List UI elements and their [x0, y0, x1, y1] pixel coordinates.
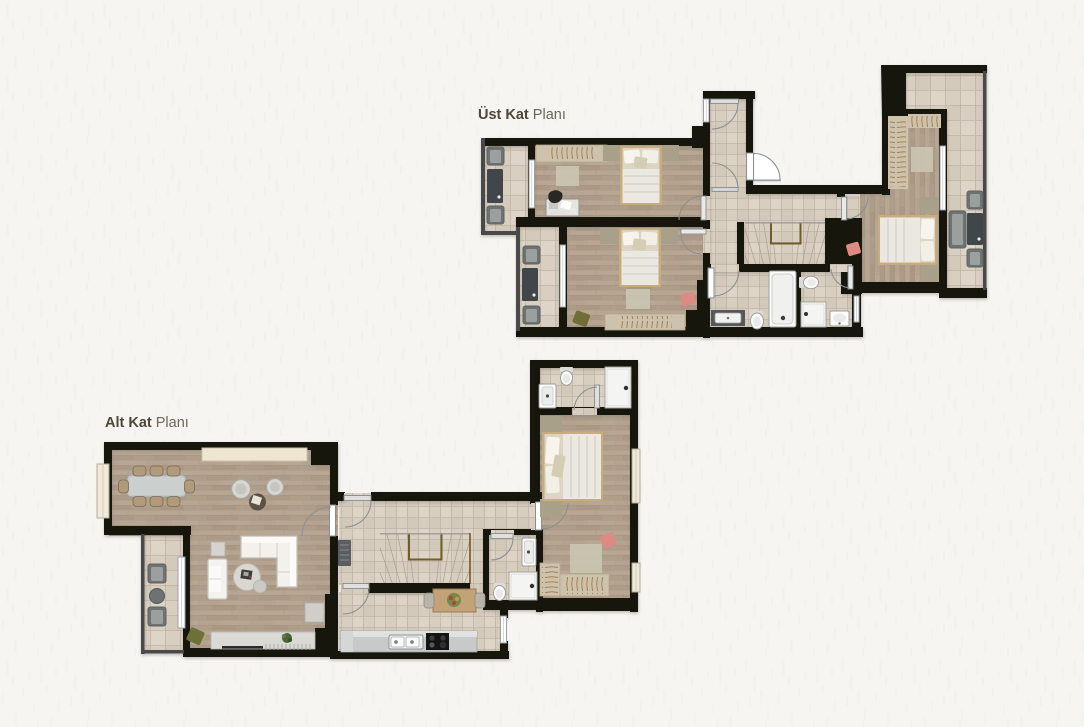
svg-text:Üst Kat Planı: Üst Kat Planı: [478, 106, 566, 123]
svg-text:Alt Kat Planı: Alt Kat Planı: [105, 415, 189, 431]
